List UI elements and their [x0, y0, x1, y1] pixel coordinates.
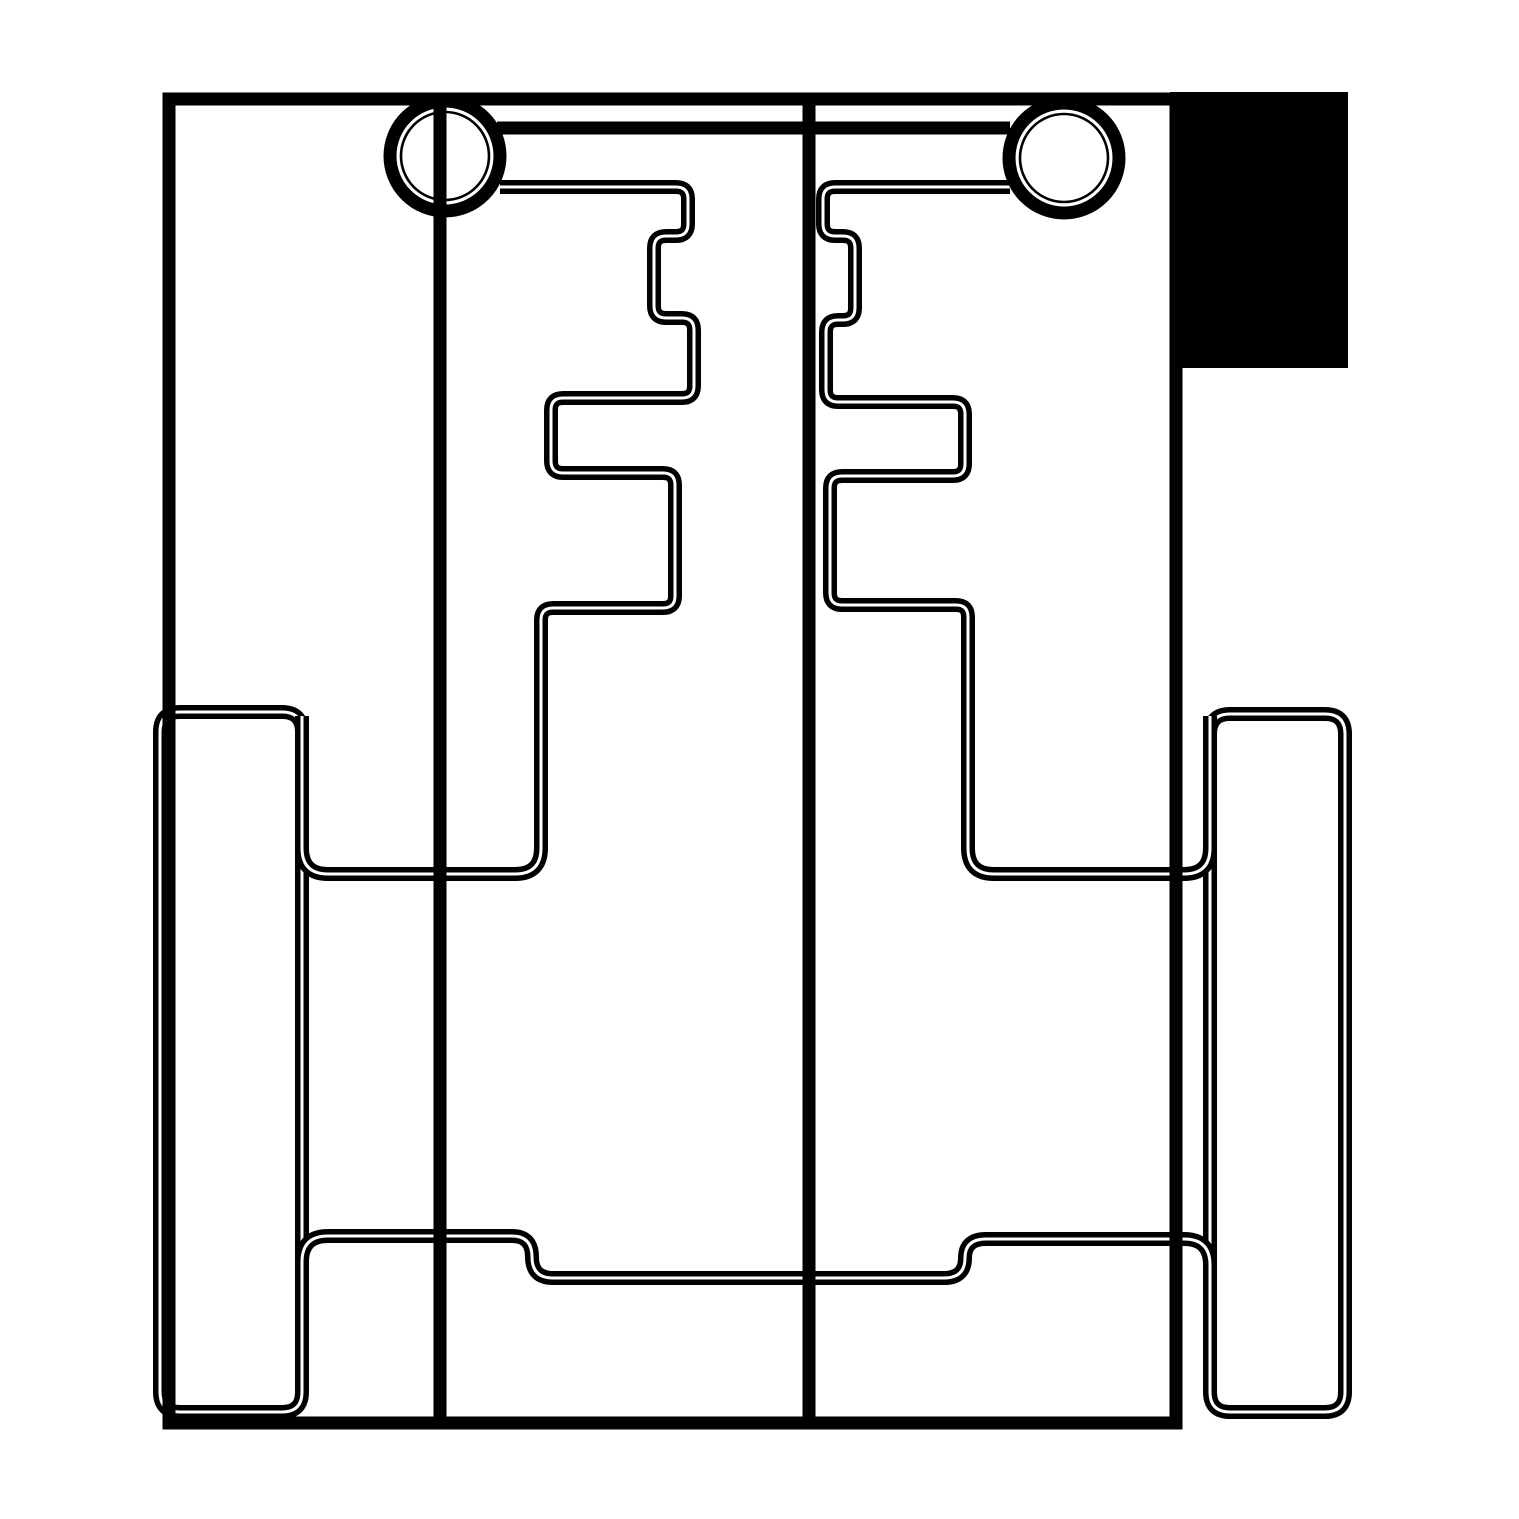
right-stepped-profile-inner-line — [823, 187, 1210, 874]
left-rail-outline — [160, 712, 302, 1412]
body-outline-rect — [169, 99, 1176, 1423]
technical-drawing — [0, 0, 1519, 1519]
left-stepped-profile — [302, 187, 694, 874]
left-rail-inner-line — [160, 712, 302, 1412]
right-stepped-profile — [823, 187, 1210, 874]
left-stepped-profile-inner-line — [302, 187, 694, 874]
right-rail-outline — [1210, 714, 1345, 1412]
drawing-canvas — [0, 0, 1519, 1519]
filled-block — [1170, 92, 1348, 368]
right-rail-inner-line — [1210, 714, 1345, 1412]
